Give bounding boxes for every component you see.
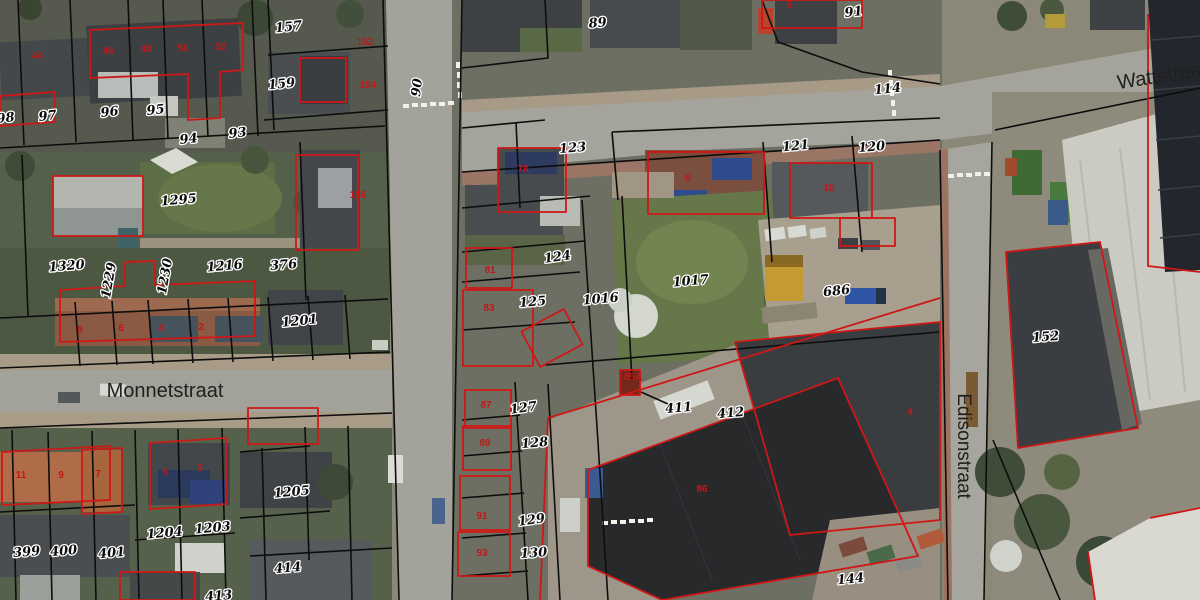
building-number-2: 2 (198, 322, 204, 333)
building-number-46: 46 (102, 46, 114, 57)
parcel-label-123: 123 (559, 140, 587, 157)
parcel-label-120: 120 (858, 139, 886, 156)
building-number-87: 87 (480, 400, 492, 411)
parcel-label-376: 376 (270, 257, 298, 274)
map-canvas[interactable]: 9897969594931571591295132012291230121637… (0, 0, 1200, 600)
street-label-edisonstraat: Edisonstraat (953, 393, 974, 499)
building-number-83: 83 (483, 303, 495, 314)
parcel-label-1295: 1295 (160, 191, 197, 209)
building-number-86: 86 (696, 484, 708, 495)
building-number-93: 93 (476, 548, 488, 559)
parcel-label-159: 159 (267, 76, 296, 94)
parcel-label-157: 157 (274, 19, 303, 37)
building-number-78: 78 (517, 164, 529, 175)
parcel-label-125: 125 (519, 294, 547, 311)
cadastral-map-svg: 9897969594931571591295132012291230121637… (0, 0, 1200, 600)
building-number-50: 50 (177, 43, 189, 54)
parcel-label-97: 97 (38, 108, 58, 125)
building-number-5: 5 (162, 467, 168, 478)
parcel-label-114: 114 (873, 81, 902, 99)
building-number-5: 5 (786, 0, 792, 11)
parcel-label-400: 400 (50, 543, 78, 560)
parcel-label-90: 90 (409, 78, 426, 98)
parcel-label-96: 96 (100, 104, 120, 121)
building-number-152: 152 (357, 37, 374, 48)
building-number-4: 4 (907, 407, 913, 418)
parcel-label-411: 411 (665, 400, 693, 417)
parcel-label-121: 121 (781, 138, 810, 156)
building-number-89: 89 (479, 438, 491, 449)
building-number-91: 91 (476, 511, 488, 522)
building-number-7: 7 (95, 469, 101, 480)
parcel-label-94: 94 (179, 131, 199, 148)
parcel-label-1216: 1216 (206, 257, 243, 275)
building-number-48: 48 (140, 44, 152, 55)
parcel-label-91: 91 (844, 4, 864, 21)
street-label-monnetstraat: Monnetstraat (107, 380, 224, 402)
building-number-81: 81 (484, 265, 496, 276)
parcel-label-93: 93 (228, 125, 248, 142)
parcel-label-412: 412 (717, 405, 745, 422)
parcel-label-1204: 1204 (146, 524, 183, 542)
parcel-label-1203: 1203 (194, 519, 231, 537)
building-number-8: 8 (77, 325, 83, 336)
parcel-label-98: 98 (0, 110, 15, 127)
building-number-10: 10 (823, 183, 835, 194)
parcel-label-144: 144 (836, 571, 865, 589)
parcel-label-95: 95 (146, 102, 166, 119)
building-number-4: 4 (158, 323, 164, 334)
building-number-6: 6 (118, 323, 124, 334)
building-number-3: 3 (197, 463, 203, 474)
parcel-label-686: 686 (822, 283, 851, 301)
parcel-label-399: 399 (13, 544, 41, 561)
parcel-label-413: 413 (205, 588, 233, 600)
building-number-85a: 85A (624, 372, 642, 383)
parcel-label-128: 128 (521, 435, 549, 452)
parcel-label-89: 89 (588, 15, 607, 32)
building-number-11: 11 (16, 470, 27, 481)
building-number-44: 44 (31, 51, 43, 62)
parcel-label-1205: 1205 (273, 483, 310, 501)
parcel-label-401: 401 (98, 545, 126, 562)
building-number-154: 154 (360, 80, 377, 91)
building-number-52: 52 (215, 42, 227, 53)
parcel-label-1017: 1017 (672, 272, 709, 290)
parcel-label-130: 130 (520, 545, 548, 562)
parcel-label-414: 414 (274, 560, 302, 577)
parcel-label-1320: 1320 (48, 257, 85, 275)
building-number-9: 9 (58, 470, 64, 481)
parcel-label-152: 152 (1032, 329, 1060, 346)
parcel-label-1016: 1016 (582, 290, 619, 308)
building-number-156: 156 (350, 190, 367, 201)
building-number-6: 6 (685, 173, 691, 184)
